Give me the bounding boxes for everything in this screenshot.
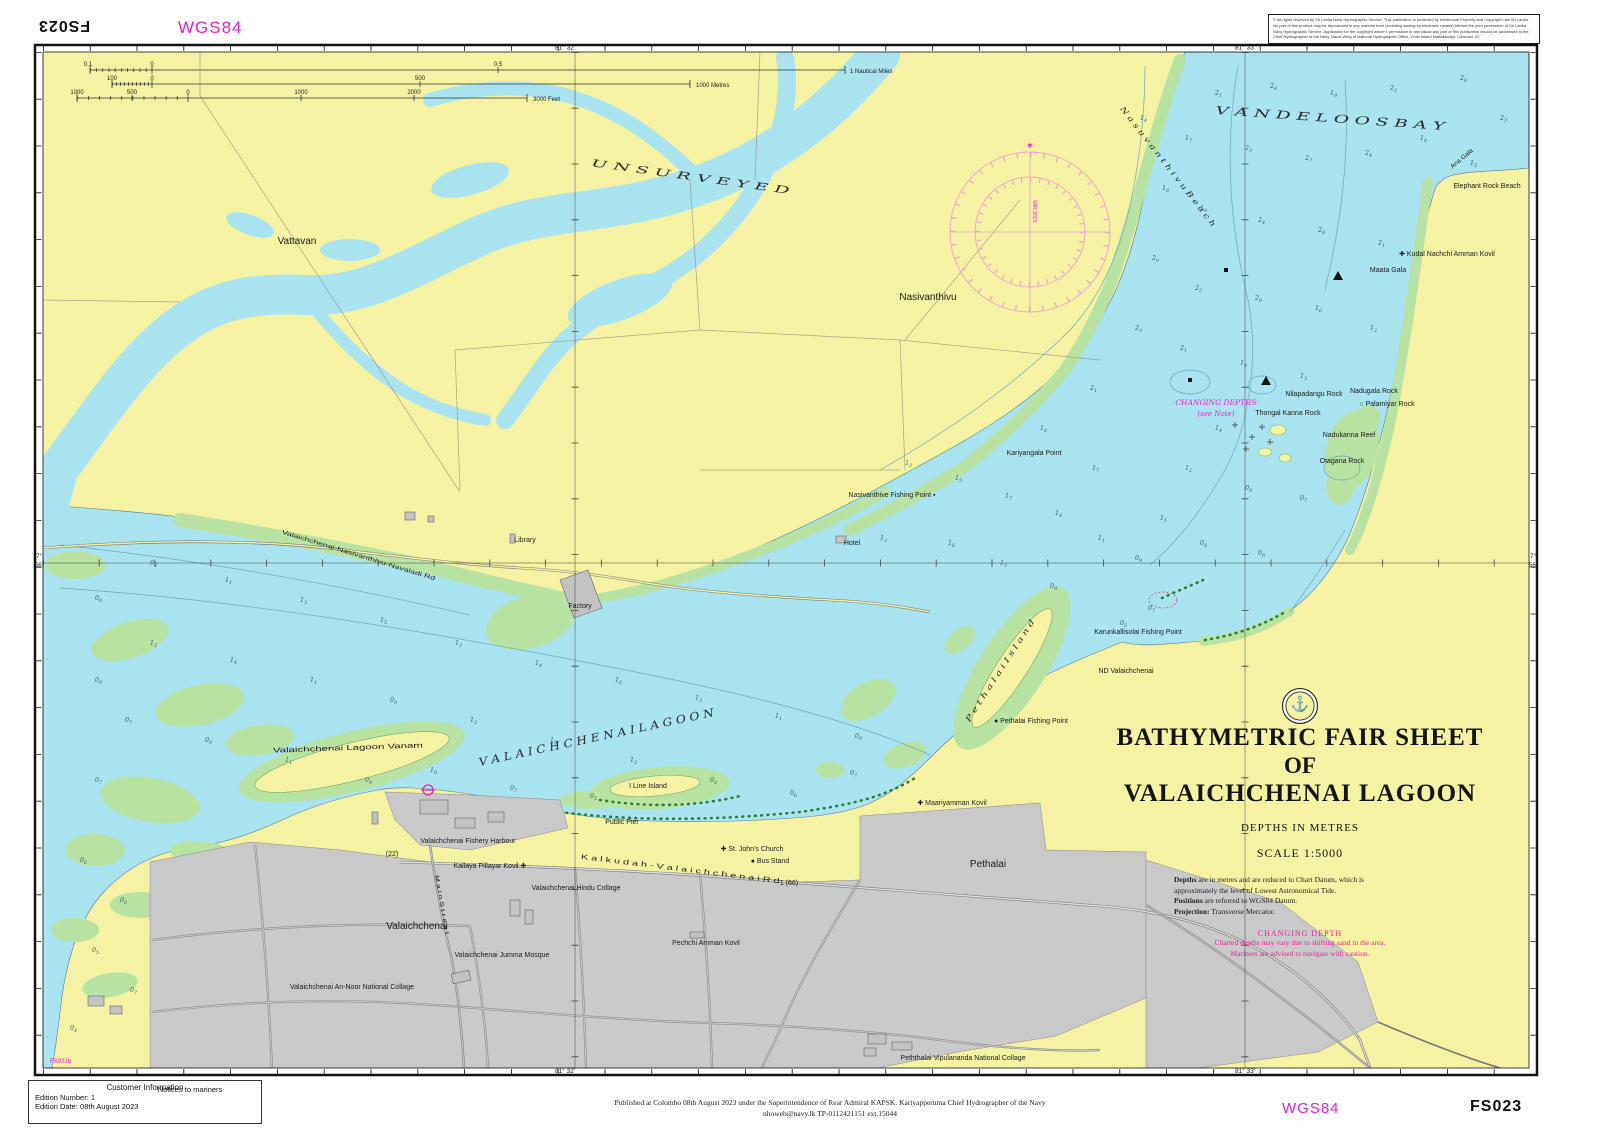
grid-label-left-min: 56'	[35, 563, 43, 569]
label-an-noor-collage: Valaichchenai An-Noor National Collage	[290, 984, 414, 991]
label-library: Library	[514, 537, 536, 544]
label-st-johns-church: ✚ St. John's Church	[721, 845, 784, 853]
label-pethalai-fishing-point: ● Pethalai Fishing Point	[994, 718, 1068, 725]
notices-to-mariners: Notices to mariners	[120, 1085, 260, 1094]
label-hotel: Hotel	[844, 540, 861, 547]
label-changing-depths-note: (see Note)	[1198, 410, 1235, 418]
label-pethalai-town: Pethalai	[970, 859, 1006, 870]
sheet-number-bottom: FS023	[1470, 1098, 1522, 1116]
edition-number: Edition Number: 1	[35, 1093, 255, 1102]
label-nilapadangu-rock: Nilapadangu Rock	[1285, 391, 1343, 398]
label-maariyamman-kovil: ✚ Maariyamman Kovil	[917, 799, 987, 807]
grid-label-top-81-33: 81° 33'	[1235, 44, 1255, 52]
scalebar-ft-3000: 3000 Feet	[533, 97, 560, 103]
label-kudal-nachchi-amman-kovil: ✚ Kudal Nachchi Amman Kovil	[1399, 250, 1495, 258]
label-vipulananda-collage: Peththalai Vipulananda National Collage	[900, 1055, 1025, 1062]
label-pechchi-amman-kovil: Pechchi Amman Kovil	[672, 940, 740, 947]
publication-line1: Published at Colombo 08th August 2023 un…	[530, 1098, 1130, 1109]
label-kallaya-pillayar-kovil: Kallaya Pillayar Kovil ✚	[454, 862, 527, 870]
label-elephant-rock-beach: Elephant Rock Beach	[1453, 183, 1520, 190]
chart-canvas: ✶ VAR 2023 212419222623172327	[0, 0, 1600, 1130]
scalebar-ft-1000-left: 1000	[70, 90, 84, 96]
label-karunkallisolai-fishing-point: Karunkallisolai Fishing Point	[1094, 629, 1182, 636]
grid-label-right-min: 56'	[1529, 563, 1537, 569]
label-adjoining-sheet: FS023b	[50, 1059, 72, 1065]
compass-north-star: ✶	[1026, 141, 1034, 152]
chart-sheet: FS023 WGS84 © All rights reserved by Sri…	[0, 0, 1600, 1130]
label-nasivanthivu: Nasivanthivu	[899, 292, 956, 303]
label-nd-valaichchenai: ND Valaichchenai	[1098, 668, 1154, 675]
scalebar-m-100: 100	[107, 76, 118, 82]
label-valaichchenai-town: Valaichchenai	[386, 921, 448, 932]
scalebar-m-500: 500	[415, 76, 426, 82]
beacon-square	[1188, 378, 1192, 382]
label-bus-stand: ● Bus Stand	[751, 858, 790, 865]
beacon-square	[1224, 268, 1228, 272]
label-milepost-22: (22)	[386, 851, 398, 858]
scalebar-nm-01: 0.1	[84, 62, 93, 68]
label-hindu-collage: Valaichchenai Hindu Collage	[532, 885, 621, 892]
label-thongal-kanna-rock: Thongal Kanna Rock	[1255, 410, 1321, 417]
label-nasivanthive-fishing-point: Nasivanthive Fishing Point ▪	[849, 492, 936, 499]
label-palamiyar-rock: ○ Palamiyar Rock	[1359, 401, 1415, 408]
label-i-line-island: I Line Island	[629, 783, 667, 790]
label-kariyangala-point: Kariyangala Point	[1007, 450, 1062, 457]
label-nadukanna-reef: Nadukanna Reef	[1323, 432, 1376, 439]
scalebar-nm-1: 1 Nautical Miles	[850, 69, 892, 75]
label-vattavan: Vattavan	[278, 236, 317, 247]
publication-note: Published at Colombo 08th August 2023 un…	[530, 1098, 1130, 1119]
label-milepost-66: 1 (66)	[780, 880, 798, 887]
scalebar-ft-1000: 1000	[294, 90, 308, 96]
edition-date: Edition Date: 08th August 2023	[35, 1102, 255, 1111]
scalebar-m-1000: 1000 Metres	[696, 83, 729, 89]
grid-label-left-deg: 7°	[36, 554, 42, 560]
grid-label-bottom-81-32: 81° 32'	[555, 1067, 575, 1075]
label-otagana-rock: Otagana Rock	[1320, 458, 1365, 465]
label-public-pier: Public Pier	[605, 819, 639, 826]
label-factory: Factory	[568, 603, 592, 610]
publication-line2: nhoweb@navy.lk TP-0112421151 ext.15044	[530, 1109, 1130, 1120]
scalebar-ft-500: 500	[127, 90, 138, 96]
grid-label-right-deg: 7°	[1530, 554, 1536, 560]
label-changing-depths: CHANGING DEPTHS	[1175, 398, 1256, 407]
label-nadugala-rock: Nadugala Rock	[1350, 388, 1398, 395]
label-jumma-mosque: Valaichchenai Jumma Mosque	[455, 952, 550, 959]
label-maata-gala: Maata Gala	[1370, 267, 1406, 274]
scalebar-ft-2000: 2000	[407, 90, 421, 96]
compass-variation-label: VAR 2023	[1031, 200, 1037, 223]
grid-label-top-81-32: 81° 32'	[555, 44, 575, 52]
grid-label-bottom-81-33: 81° 33'	[1235, 1067, 1255, 1075]
scalebar-nm-05: 0.5	[494, 62, 503, 68]
label-fishery-harbour: Valaichchenai Fishery Harbour	[420, 838, 516, 845]
datum-label-bottom: WGS84	[1282, 1100, 1340, 1117]
